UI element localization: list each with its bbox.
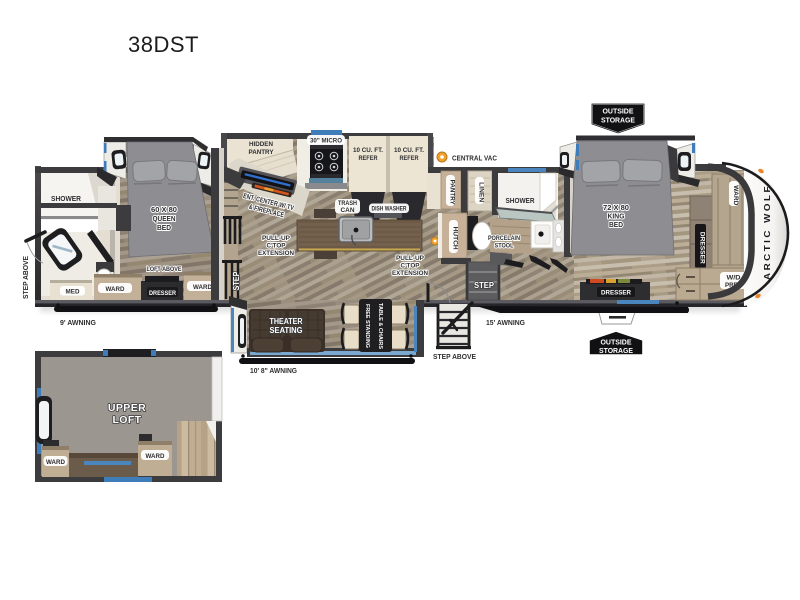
svg-text:SEATING: SEATING	[270, 326, 303, 335]
svg-text:PANTRY: PANTRY	[249, 149, 275, 156]
svg-text:10 CU. FT.: 10 CU. FT.	[394, 147, 424, 154]
svg-text:CAN: CAN	[341, 207, 355, 214]
svg-text:UPPER: UPPER	[108, 402, 146, 414]
svg-text:60 X 80: 60 X 80	[151, 205, 177, 214]
svg-text:WARD: WARD	[193, 284, 212, 291]
svg-text:REFER: REFER	[359, 155, 378, 162]
svg-text:DISH WASHER: DISH WASHER	[372, 206, 407, 213]
svg-text:PULL-UP: PULL-UP	[262, 235, 291, 242]
svg-text:HIDDEN: HIDDEN	[249, 141, 273, 148]
svg-text:STORAGE: STORAGE	[599, 348, 633, 355]
svg-text:QUEEN: QUEEN	[153, 214, 176, 223]
svg-text:15' AWNING: 15' AWNING	[486, 318, 525, 327]
svg-text:STEP: STEP	[474, 281, 494, 290]
svg-text:HUTCH: HUTCH	[452, 227, 458, 250]
svg-text:SHOWER: SHOWER	[51, 194, 82, 203]
svg-text:DRESSER: DRESSER	[699, 232, 705, 265]
svg-text:REFER: REFER	[400, 155, 419, 162]
svg-text:BED: BED	[609, 220, 624, 229]
svg-text:STEP: STEP	[232, 272, 241, 291]
svg-text:38DST: 38DST	[128, 32, 199, 57]
svg-text:ARCTIC WOLF: ARCTIC WOLF	[763, 184, 772, 280]
svg-text:C'TOP: C'TOP	[401, 263, 421, 270]
svg-text:SHOWER: SHOWER	[506, 196, 536, 205]
svg-text:10' 8" AWNING: 10' 8" AWNING	[250, 366, 297, 375]
svg-text:CENTRAL VAC: CENTRAL VAC	[452, 154, 497, 163]
svg-text:STORAGE: STORAGE	[601, 118, 635, 125]
svg-text:30" MICRO: 30" MICRO	[310, 138, 342, 145]
svg-text:WARD: WARD	[46, 459, 65, 466]
svg-text:BED: BED	[157, 223, 172, 232]
svg-text:9' AWNING: 9' AWNING	[60, 318, 96, 327]
svg-text:DRESSER: DRESSER	[149, 290, 176, 297]
svg-text:WARD: WARD	[106, 286, 125, 293]
svg-text:EXTENSION: EXTENSION	[392, 270, 428, 277]
svg-text:STOOL: STOOL	[495, 243, 514, 250]
svg-text:PULL-UP: PULL-UP	[396, 255, 425, 262]
svg-text:LOFT ABOVE: LOFT ABOVE	[147, 266, 182, 273]
svg-text:EXTENSION: EXTENSION	[258, 250, 294, 257]
svg-text:OUTSIDE: OUTSIDE	[601, 340, 632, 347]
svg-text:LINEN: LINEN	[478, 182, 484, 202]
svg-text:STEP ABOVE: STEP ABOVE	[21, 256, 30, 299]
svg-text:10 CU. FT.: 10 CU. FT.	[353, 147, 383, 154]
svg-text:WARD: WARD	[146, 453, 165, 460]
svg-text:MED: MED	[66, 289, 80, 296]
svg-text:OUTSIDE: OUTSIDE	[603, 109, 634, 116]
svg-text:W/D: W/D	[727, 275, 742, 282]
svg-text:PORCELAIN: PORCELAIN	[488, 235, 520, 242]
svg-text:WARD: WARD	[732, 185, 739, 206]
svg-text:LOFT: LOFT	[112, 414, 141, 426]
svg-text:C'TOP: C'TOP	[267, 243, 287, 250]
svg-text:DRESSER: DRESSER	[601, 290, 632, 297]
svg-text:STEP ABOVE: STEP ABOVE	[433, 352, 476, 361]
svg-text:THEATER: THEATER	[270, 317, 303, 326]
svg-text:TABLE & CHAIRS: TABLE & CHAIRS	[377, 303, 383, 349]
svg-text:PANTRY: PANTRY	[449, 180, 455, 205]
svg-text:FREE STANDING: FREE STANDING	[364, 304, 370, 348]
